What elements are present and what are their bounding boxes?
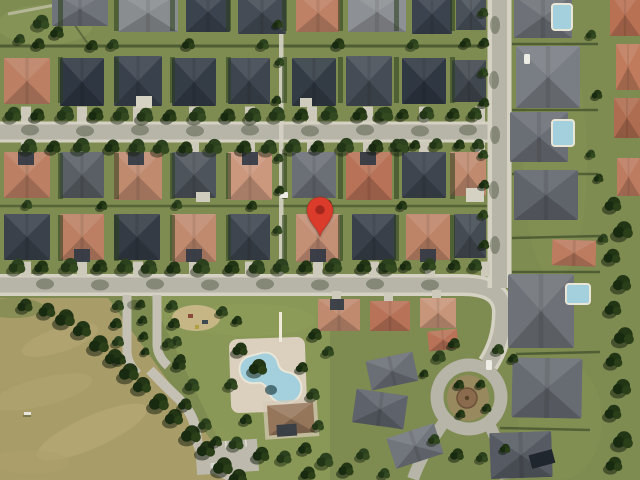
clubhouse <box>263 398 320 440</box>
pool-walkway <box>279 312 282 342</box>
map-pin-icon <box>306 196 334 238</box>
map-viewport[interactable] <box>0 0 640 480</box>
field-bench <box>24 412 31 415</box>
backyard-pool <box>552 120 574 146</box>
location-marker[interactable] <box>306 196 334 238</box>
satellite-imagery <box>0 0 640 480</box>
backyard-pool <box>566 284 590 304</box>
backyard-pool <box>552 4 572 30</box>
